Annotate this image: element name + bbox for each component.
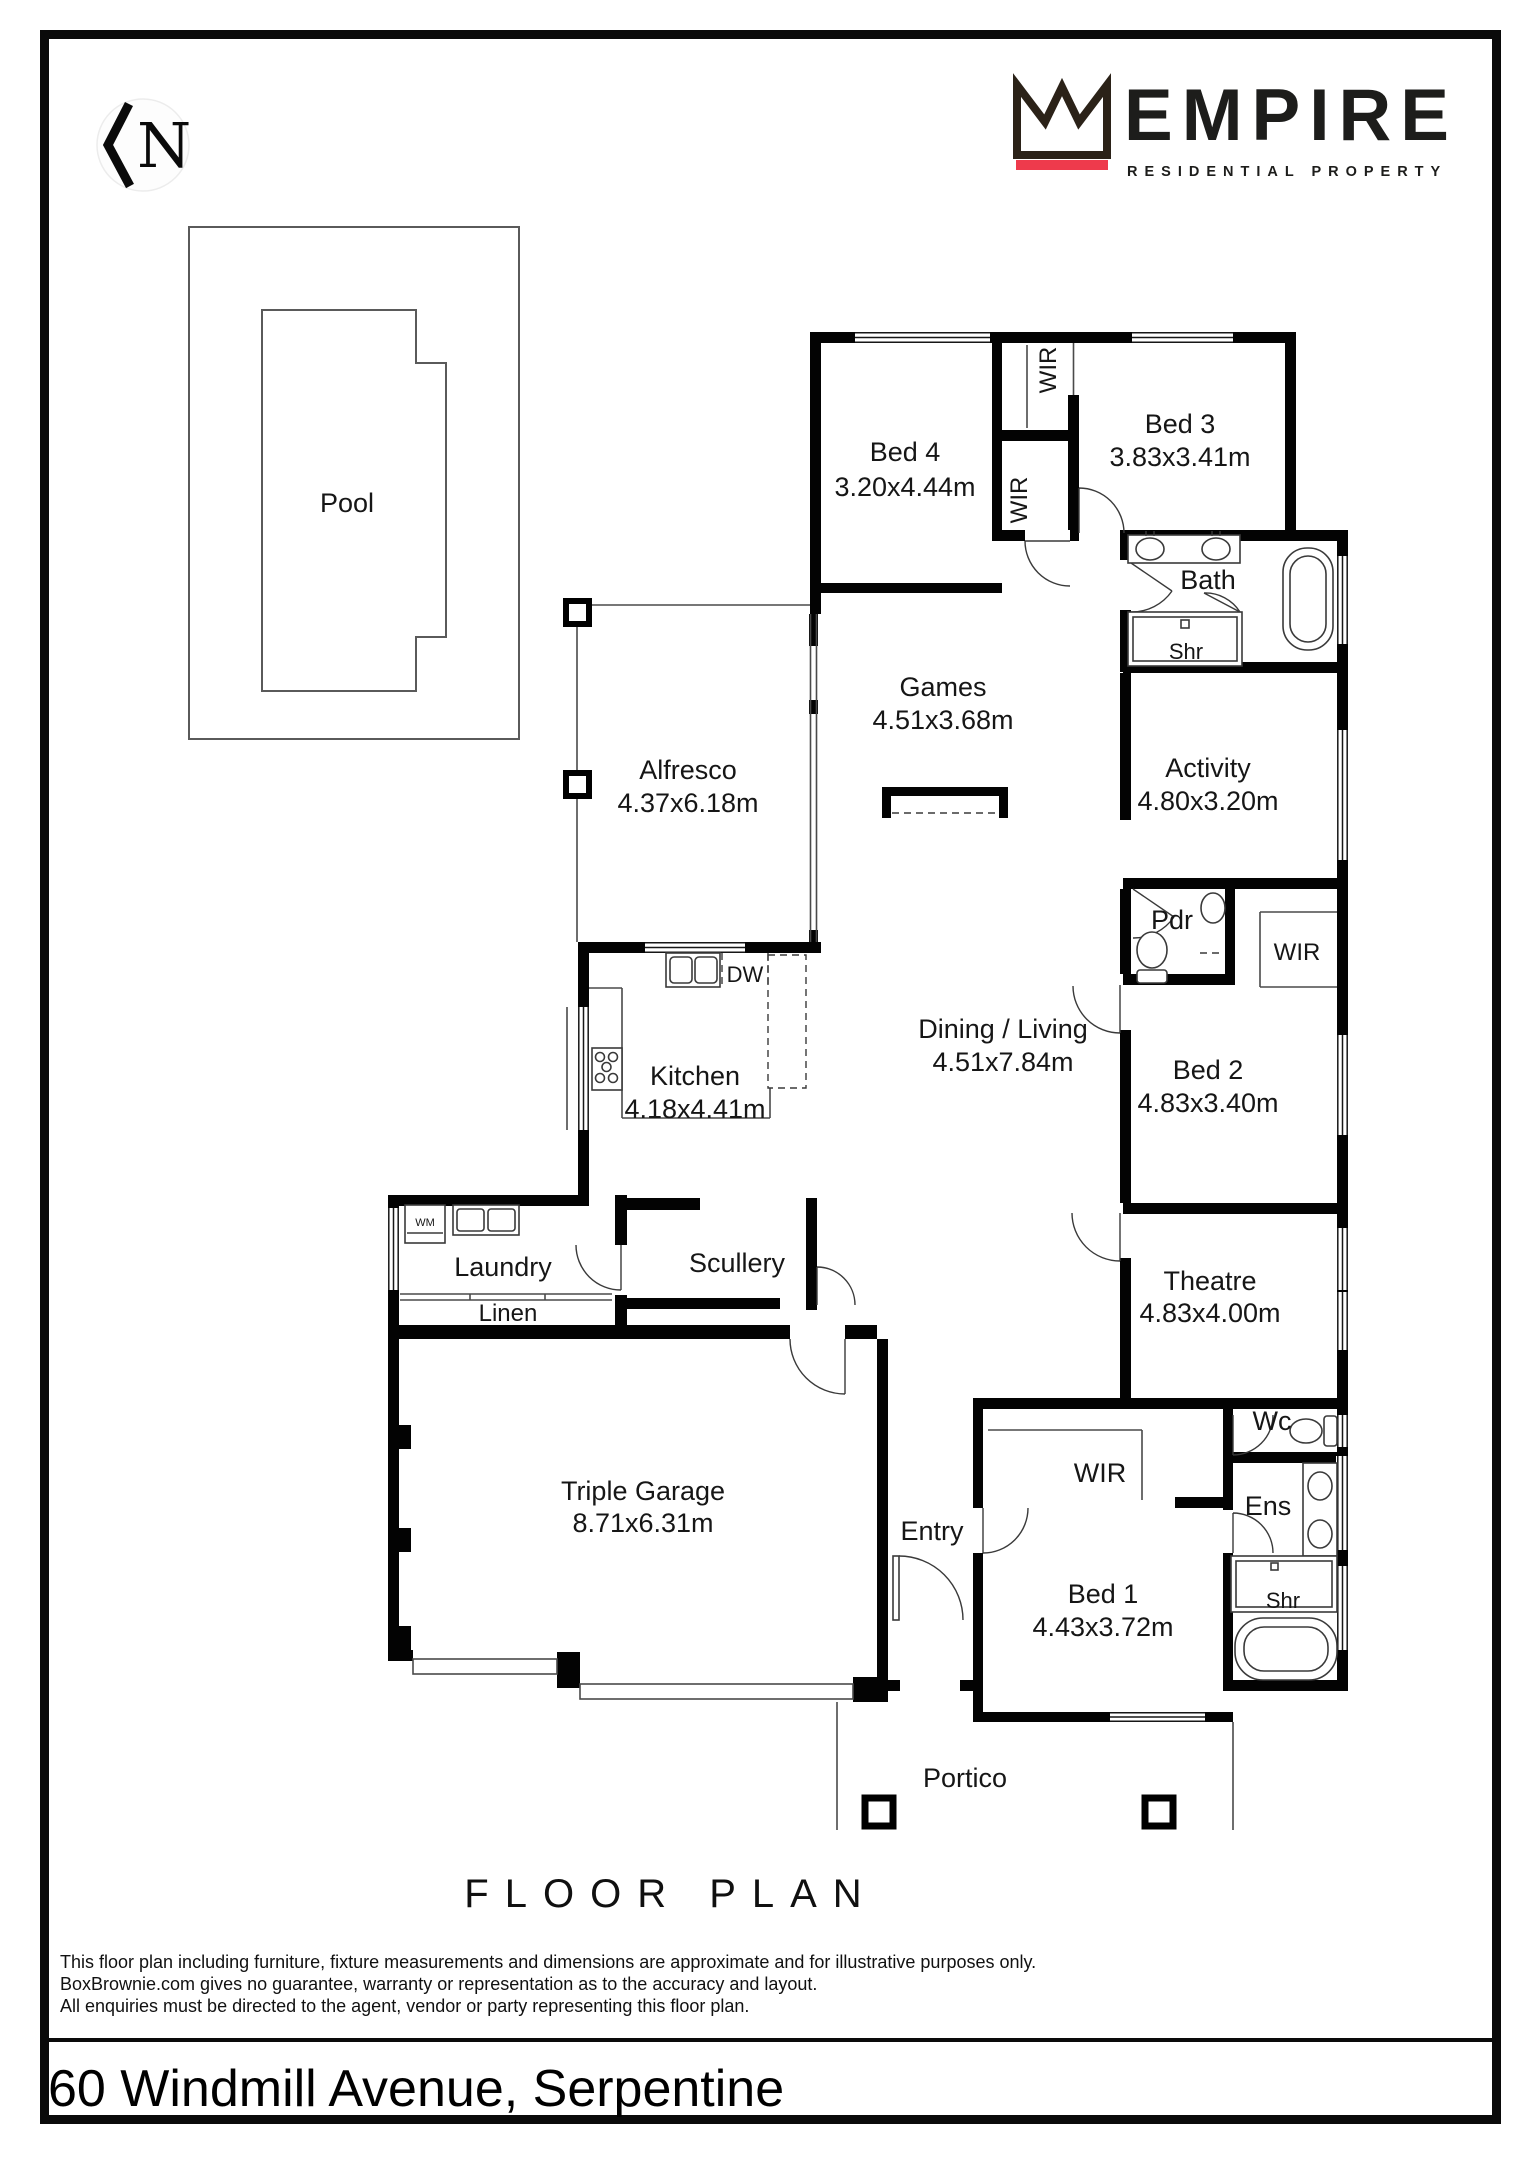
basin-icon [1202,538,1230,560]
room-dims-dining: 4.51x7.84m [932,1047,1073,1077]
media-unit [882,787,1008,818]
basin-icon [1201,893,1225,923]
label-wir-bed1: WIR [1074,1458,1126,1488]
crown-icon [1017,85,1107,155]
property-address: 60 Windmill Avenue, Serpentine [48,2060,784,2118]
room-dims-kitchen: 4.18x4.41m [624,1094,765,1124]
portico-post [865,1798,893,1826]
window [1336,1035,1349,1135]
door-scullery [817,1267,855,1305]
brand-red-bar [1016,160,1108,170]
floor-plan-page: N EMPIRE RESIDENTIAL PROPERTY Pool [0,0,1536,2172]
room-label-portico: Portico [923,1763,1007,1793]
entry-sidelight [893,1556,899,1620]
disclaimer-line-1: This floor plan including furniture, fix… [60,1952,1036,1972]
toilet-icon [1137,932,1167,968]
room-dims-games: 4.51x3.68m [872,705,1013,735]
label-wir-bed2: WIR [1274,939,1321,966]
window [1336,1415,1349,1447]
room-label-pool: Pool [320,488,374,518]
alfresco-post [566,601,589,624]
window [1110,1711,1205,1723]
garage-door-panel [580,1684,853,1699]
pantry-outline [768,955,806,1088]
room-label-bed4: Bed 4 [870,437,941,467]
room-label-scullery: Scullery [689,1248,786,1278]
brand-logo: EMPIRE RESIDENTIAL PROPERTY [1016,75,1458,180]
room-label-pdr: Pdr [1151,905,1193,935]
title-block: FLOOR PLAN This floor plan including fur… [44,1872,1497,2118]
window [645,941,745,954]
window [1336,1292,1349,1350]
room-label-theatre: Theatre [1163,1266,1256,1296]
door-theatre [1072,1213,1120,1261]
room-dims-bed2: 4.83x3.40m [1137,1088,1278,1118]
door-shower-bath [1204,593,1240,612]
window [1336,1228,1349,1290]
room-label-activity: Activity [1165,753,1251,783]
room-dims-activity: 4.80x3.20m [1137,786,1278,816]
window [1336,556,1349,644]
room-label-games: Games [899,672,986,702]
door-bed1 [983,1508,1028,1553]
brand-name: EMPIRE [1124,75,1458,156]
label-shower-ens: Shr [1266,1588,1300,1613]
window [1336,730,1349,860]
basin-icon [1308,1472,1332,1500]
room-label-bed2: Bed 2 [1173,1055,1244,1085]
disclaimer-line-3: All enquiries must be directed to the ag… [60,1996,749,2016]
room-label-kitchen: Kitchen [650,1061,740,1091]
room-label-dining: Dining / Living [918,1014,1088,1044]
window [855,331,990,344]
door-laundry [576,1245,621,1290]
window [1336,1566,1349,1650]
plan-title: FLOOR PLAN [464,1872,877,1916]
north-indicator-icon: N [97,99,191,191]
label-wir-top: WIR [1035,347,1062,394]
door-bath [1131,563,1172,612]
basin-icon [1136,538,1164,560]
disclaimer-line-2: BoxBrownie.com gives no guarantee, warra… [60,1974,817,1994]
room-label-laundry: Laundry [454,1252,552,1282]
north-label: N [137,109,191,182]
door-bed3 [1079,488,1124,533]
label-shower-bath: Shr [1169,639,1203,664]
room-label-linen: Linen [479,1300,538,1327]
room-label-ens: Ens [1245,1491,1292,1521]
footer-divider [44,2038,1497,2042]
window [1336,1456,1349,1550]
room-label-alfresco: Alfresco [639,755,737,785]
basin-icon [1308,1520,1332,1548]
door-garage [790,1339,845,1394]
label-dishwasher: DW [727,962,764,987]
portico-post [1145,1798,1173,1826]
garage-door-panel [413,1659,557,1674]
door-bed4 [1025,541,1070,586]
room-dims-alfresco: 4.37x6.18m [617,788,758,818]
room-dims-bed3: 3.83x3.41m [1109,442,1250,472]
room-label-entry: Entry [900,1516,964,1546]
door-front [899,1556,963,1620]
room-label-wc: Wc [1253,1406,1292,1436]
window [387,1208,400,1290]
room-dims-garage: 8.71x6.31m [572,1508,713,1538]
alfresco-post [566,773,589,796]
toilet-icon [1290,1419,1322,1443]
window [1132,331,1233,344]
room-label-bed3: Bed 3 [1145,409,1216,439]
brand-tagline: RESIDENTIAL PROPERTY [1127,164,1447,180]
room-dims-bed4: 3.20x4.44m [834,472,975,502]
window [567,1007,590,1130]
room-label-bed1: Bed 1 [1068,1579,1139,1609]
pool-area: Pool [189,227,519,739]
room-label-garage: Triple Garage [561,1476,725,1506]
label-washing-machine: WM [415,1217,435,1229]
room-dims-theatre: 4.83x4.00m [1139,1298,1280,1328]
room-dims-bed1: 4.43x3.72m [1032,1612,1173,1642]
label-wir-mid: WIR [1006,477,1033,524]
room-label-bath: Bath [1180,565,1236,595]
